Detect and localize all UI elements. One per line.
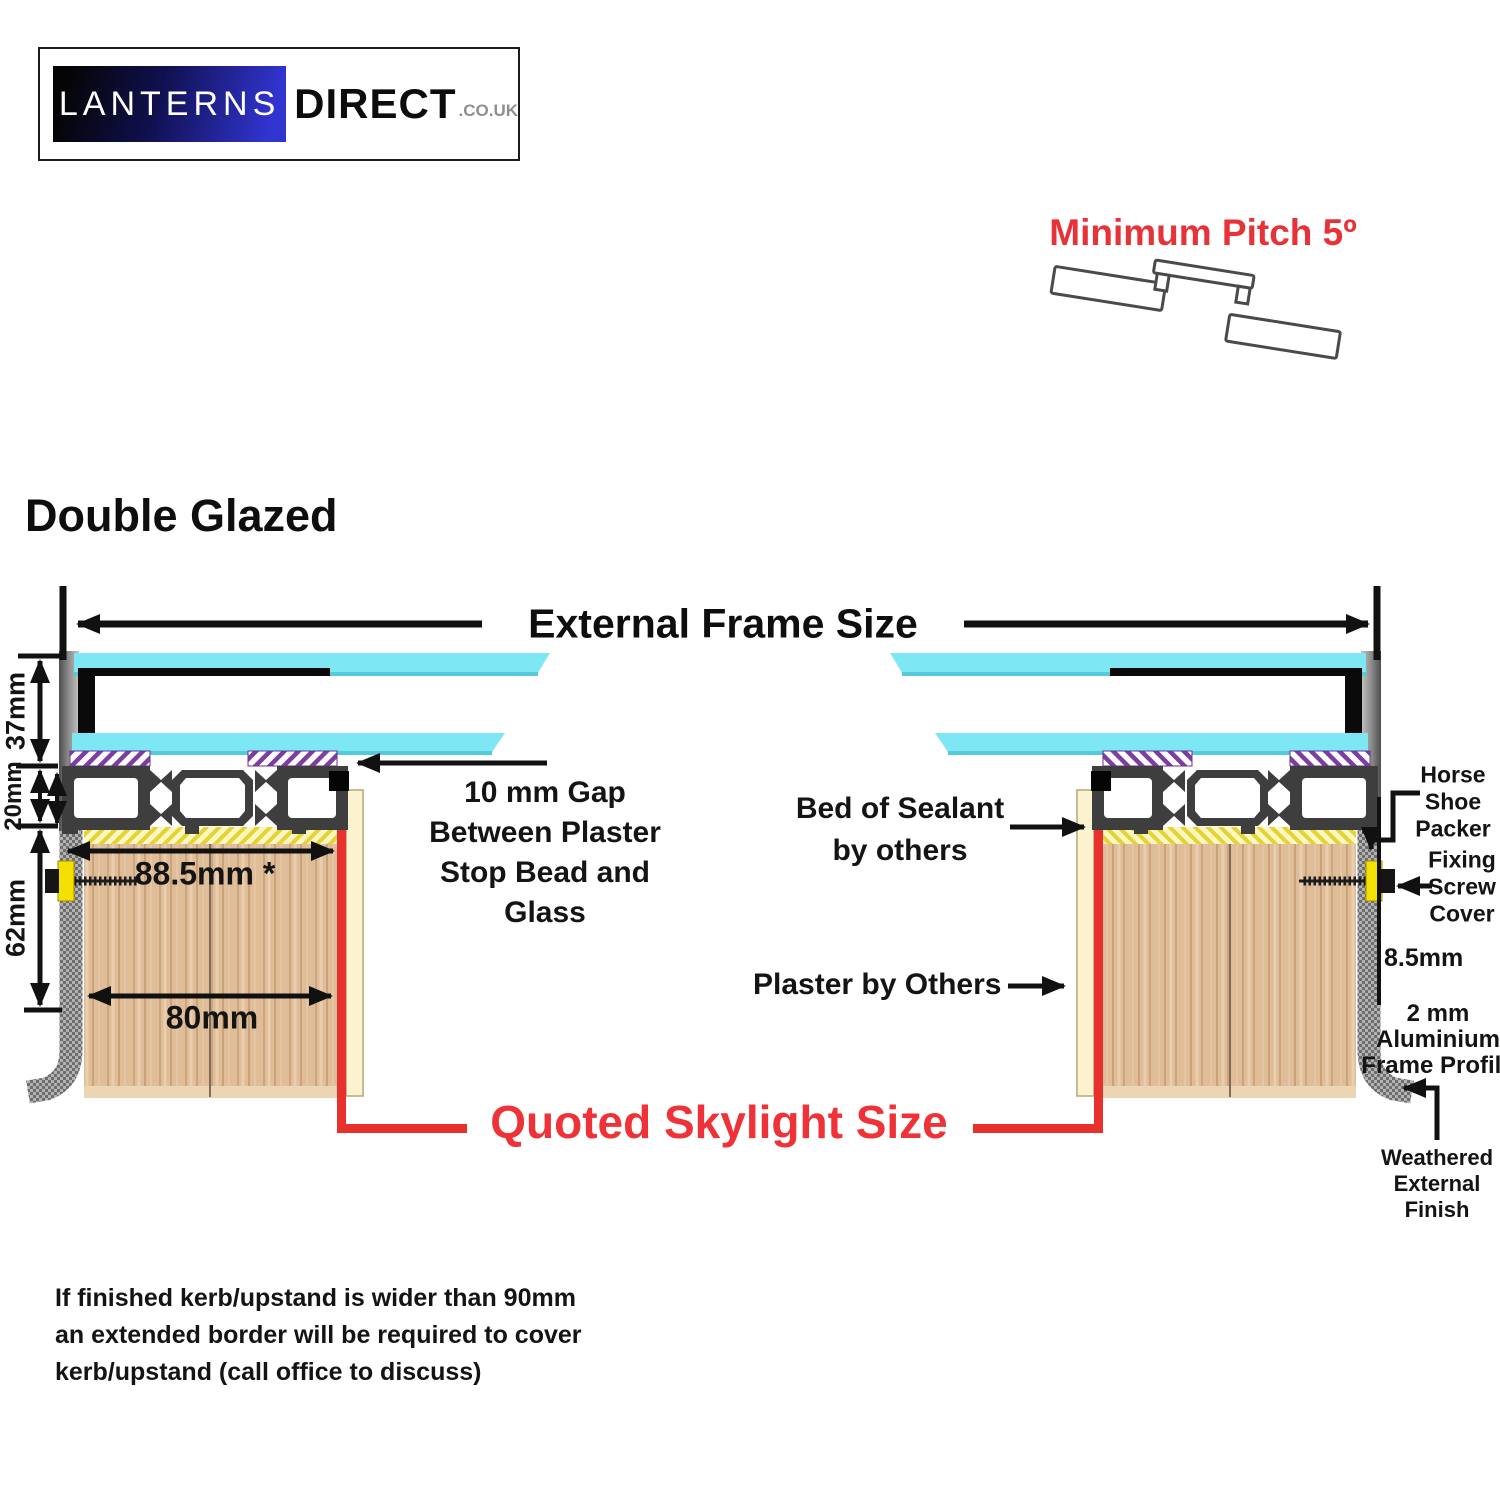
dim-8-5mm: 8.5mm <box>1384 944 1463 973</box>
dim-62mm: 62mm <box>1 879 32 957</box>
dim-20mm: 20mm <box>0 761 28 830</box>
kerb-footnote: If finished kerb/upstand is wider than 9… <box>55 1280 582 1391</box>
quoted-skylight-size-label: Quoted Skylight Size <box>490 1095 948 1149</box>
weathered-note: Weathered External Finish <box>1367 1145 1500 1223</box>
sealant-note: Bed of Sealant by others <box>740 788 1060 872</box>
logo-brand-secondary: DIRECT <box>294 80 456 128</box>
screw-cover-note: Fixing Screw Cover <box>1402 847 1500 928</box>
logo: LANTERNS DIRECT .CO.UK <box>38 47 520 161</box>
right-cross-section <box>890 651 1412 1133</box>
alu-profile-note: 2 mm Aluminium Frame Profile <box>1358 1001 1500 1079</box>
section-heading: Double Glazed <box>25 490 338 542</box>
plaster-note: Plaster by Others <box>753 968 1001 1002</box>
minimum-pitch-label: Minimum Pitch 5º <box>1049 212 1357 254</box>
logo-gradient-panel: LANTERNS <box>53 66 286 142</box>
logo-brand-primary: LANTERNS <box>59 85 280 124</box>
dim-80mm: 80mm <box>166 1000 259 1037</box>
external-frame-size-label: External Frame Size <box>528 601 918 648</box>
minimum-pitch-icon <box>1048 245 1347 359</box>
page: LANTERNS DIRECT .CO.UK Minimum Pitch 5º … <box>0 0 1500 1500</box>
dim-88-5mm: 88.5mm * <box>135 856 276 893</box>
packer-note: Horse Shoe Packer <box>1393 762 1500 843</box>
gap-note: 10 mm Gap Between Plaster Stop Bead and … <box>380 773 710 933</box>
logo-tld: .CO.UK <box>459 101 519 121</box>
dim-37mm: 37mm <box>1 672 32 750</box>
